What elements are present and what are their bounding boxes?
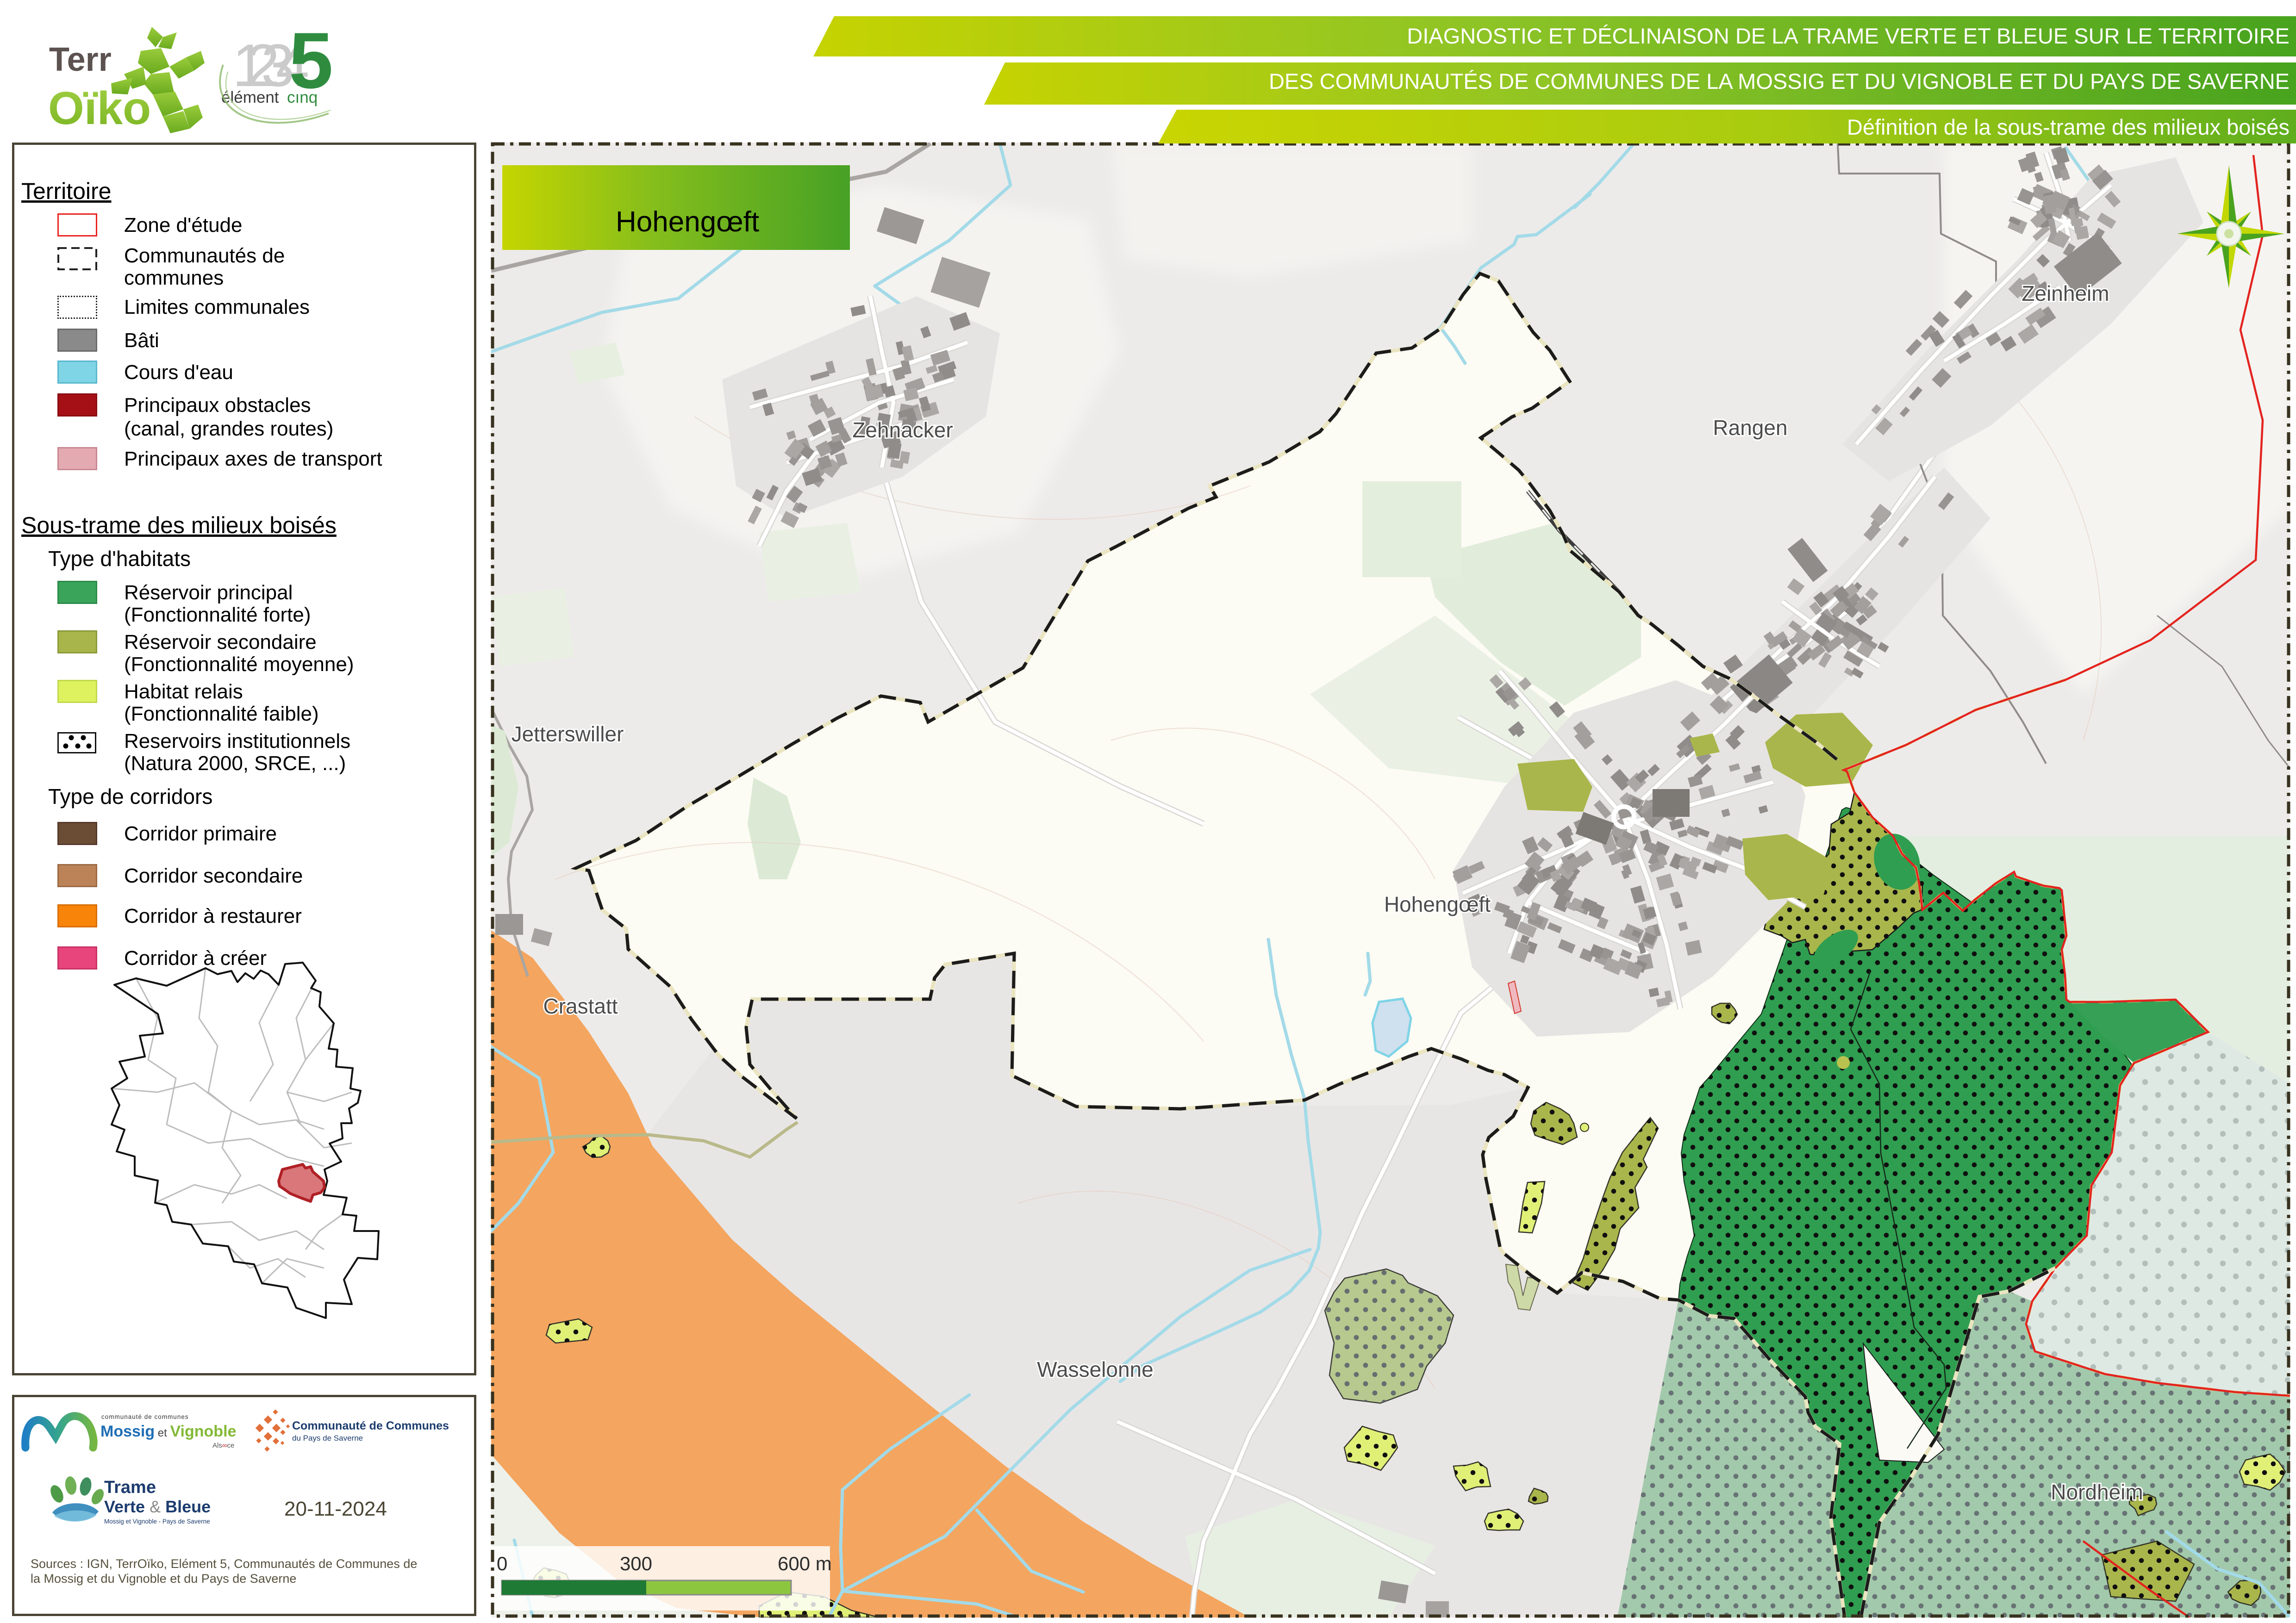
svg-text:Communauté de Communes: Communauté de Communes (292, 1419, 449, 1432)
svg-text:Mossig et Vignoble: Mossig et Vignoble (100, 1423, 236, 1440)
svg-text:communauté de communes: communauté de communes (101, 1413, 189, 1420)
svg-text:Trame: Trame (104, 1478, 156, 1497)
svg-text:du Pays de Saverne: du Pays de Saverne (292, 1434, 363, 1443)
svg-text:Als∞ce: Als∞ce (212, 1442, 234, 1449)
svg-text:Verte & Bleue: Verte & Bleue (104, 1497, 211, 1516)
svg-text:Mossig et Vignoble - Pays de S: Mossig et Vignoble - Pays de Saverne (104, 1518, 210, 1525)
